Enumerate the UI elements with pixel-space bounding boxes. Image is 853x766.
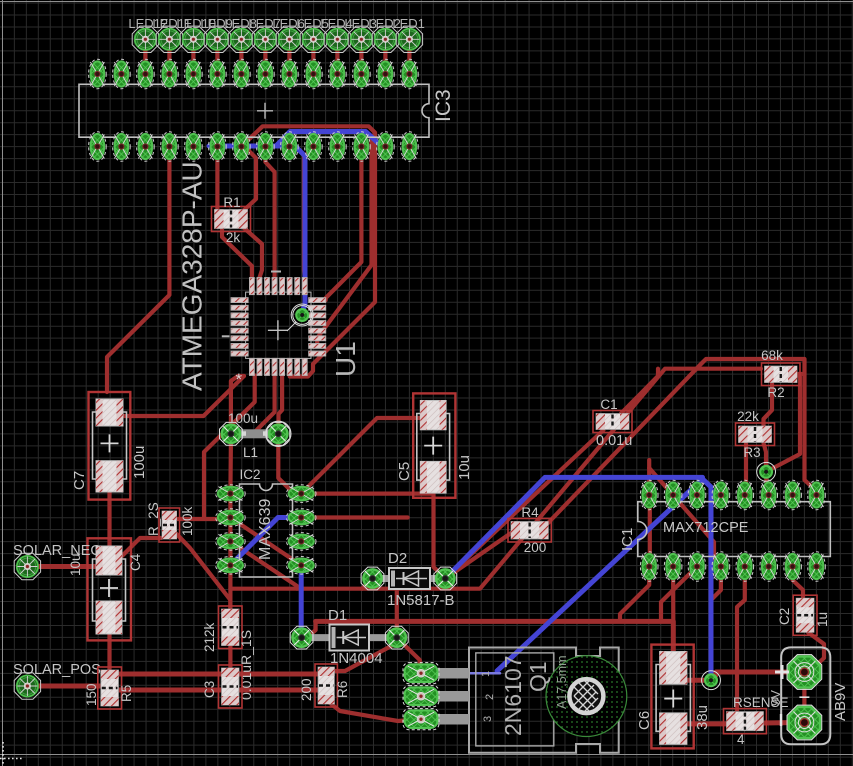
svg-text:2k: 2k [226,230,241,245]
svg-text:IC3: IC3 [432,89,455,122]
svg-text:R3: R3 [743,445,760,460]
svg-text:1: 1 [480,671,492,677]
svg-text:IC2: IC2 [239,467,260,482]
svg-text:A17,5mm: A17,5mm [555,656,569,710]
svg-text:22k: 22k [737,409,759,424]
svg-text:68k: 68k [761,348,783,363]
svg-text:9V: 9V [768,690,783,706]
svg-text:R6: R6 [335,681,350,698]
svg-text:150: 150 [84,683,99,706]
svg-text:1N4004: 1N4004 [330,650,383,667]
svg-text:Q1: Q1 [525,661,551,692]
svg-text:212k: 212k [202,622,217,652]
svg-text:D2: D2 [388,550,407,567]
svg-text:D1: D1 [328,607,347,624]
svg-text:C1: C1 [600,397,617,412]
svg-text:R4: R4 [521,505,539,520]
svg-text:3: 3 [482,716,494,722]
svg-text:IC1: IC1 [619,528,636,551]
svg-text:MAX712CPE: MAX712CPE [663,520,749,536]
svg-text:R_2S: R_2S [146,502,161,536]
svg-text:R1: R1 [223,195,240,210]
svg-text:R5: R5 [119,685,134,702]
svg-text:C3: C3 [202,681,217,698]
svg-text:C4: C4 [128,553,143,571]
svg-text:10u: 10u [456,455,473,480]
svg-text:LED1: LED1 [392,16,425,31]
svg-text:L1: L1 [243,445,258,460]
svg-text:100u: 100u [228,411,258,426]
svg-text:C7: C7 [71,471,88,490]
svg-text:200: 200 [524,540,547,555]
svg-text:2N6107: 2N6107 [500,655,526,736]
svg-text:1N5817-B: 1N5817-B [387,592,455,609]
svg-text:C2: C2 [777,608,792,625]
svg-text:U1: U1 [330,341,361,377]
svg-text:AB9V: AB9V [832,683,849,721]
svg-text:C5: C5 [396,462,413,481]
svg-text:4: 4 [737,732,745,747]
svg-text:200: 200 [299,678,314,701]
svg-text:*: * [235,370,242,389]
svg-text:0.01u: 0.01u [596,433,632,449]
svg-text:1u: 1u [815,612,830,627]
svg-text:100u: 100u [131,446,148,479]
svg-text:100k: 100k [180,506,195,536]
svg-text:38u: 38u [694,705,711,730]
svg-text:R2: R2 [767,385,784,400]
svg-text:ATMEGA328P-AU: ATMEGA328P-AU [177,161,208,391]
svg-text:MAX639: MAX639 [257,499,274,560]
svg-text:C6: C6 [636,711,653,730]
svg-text:2: 2 [484,694,496,700]
